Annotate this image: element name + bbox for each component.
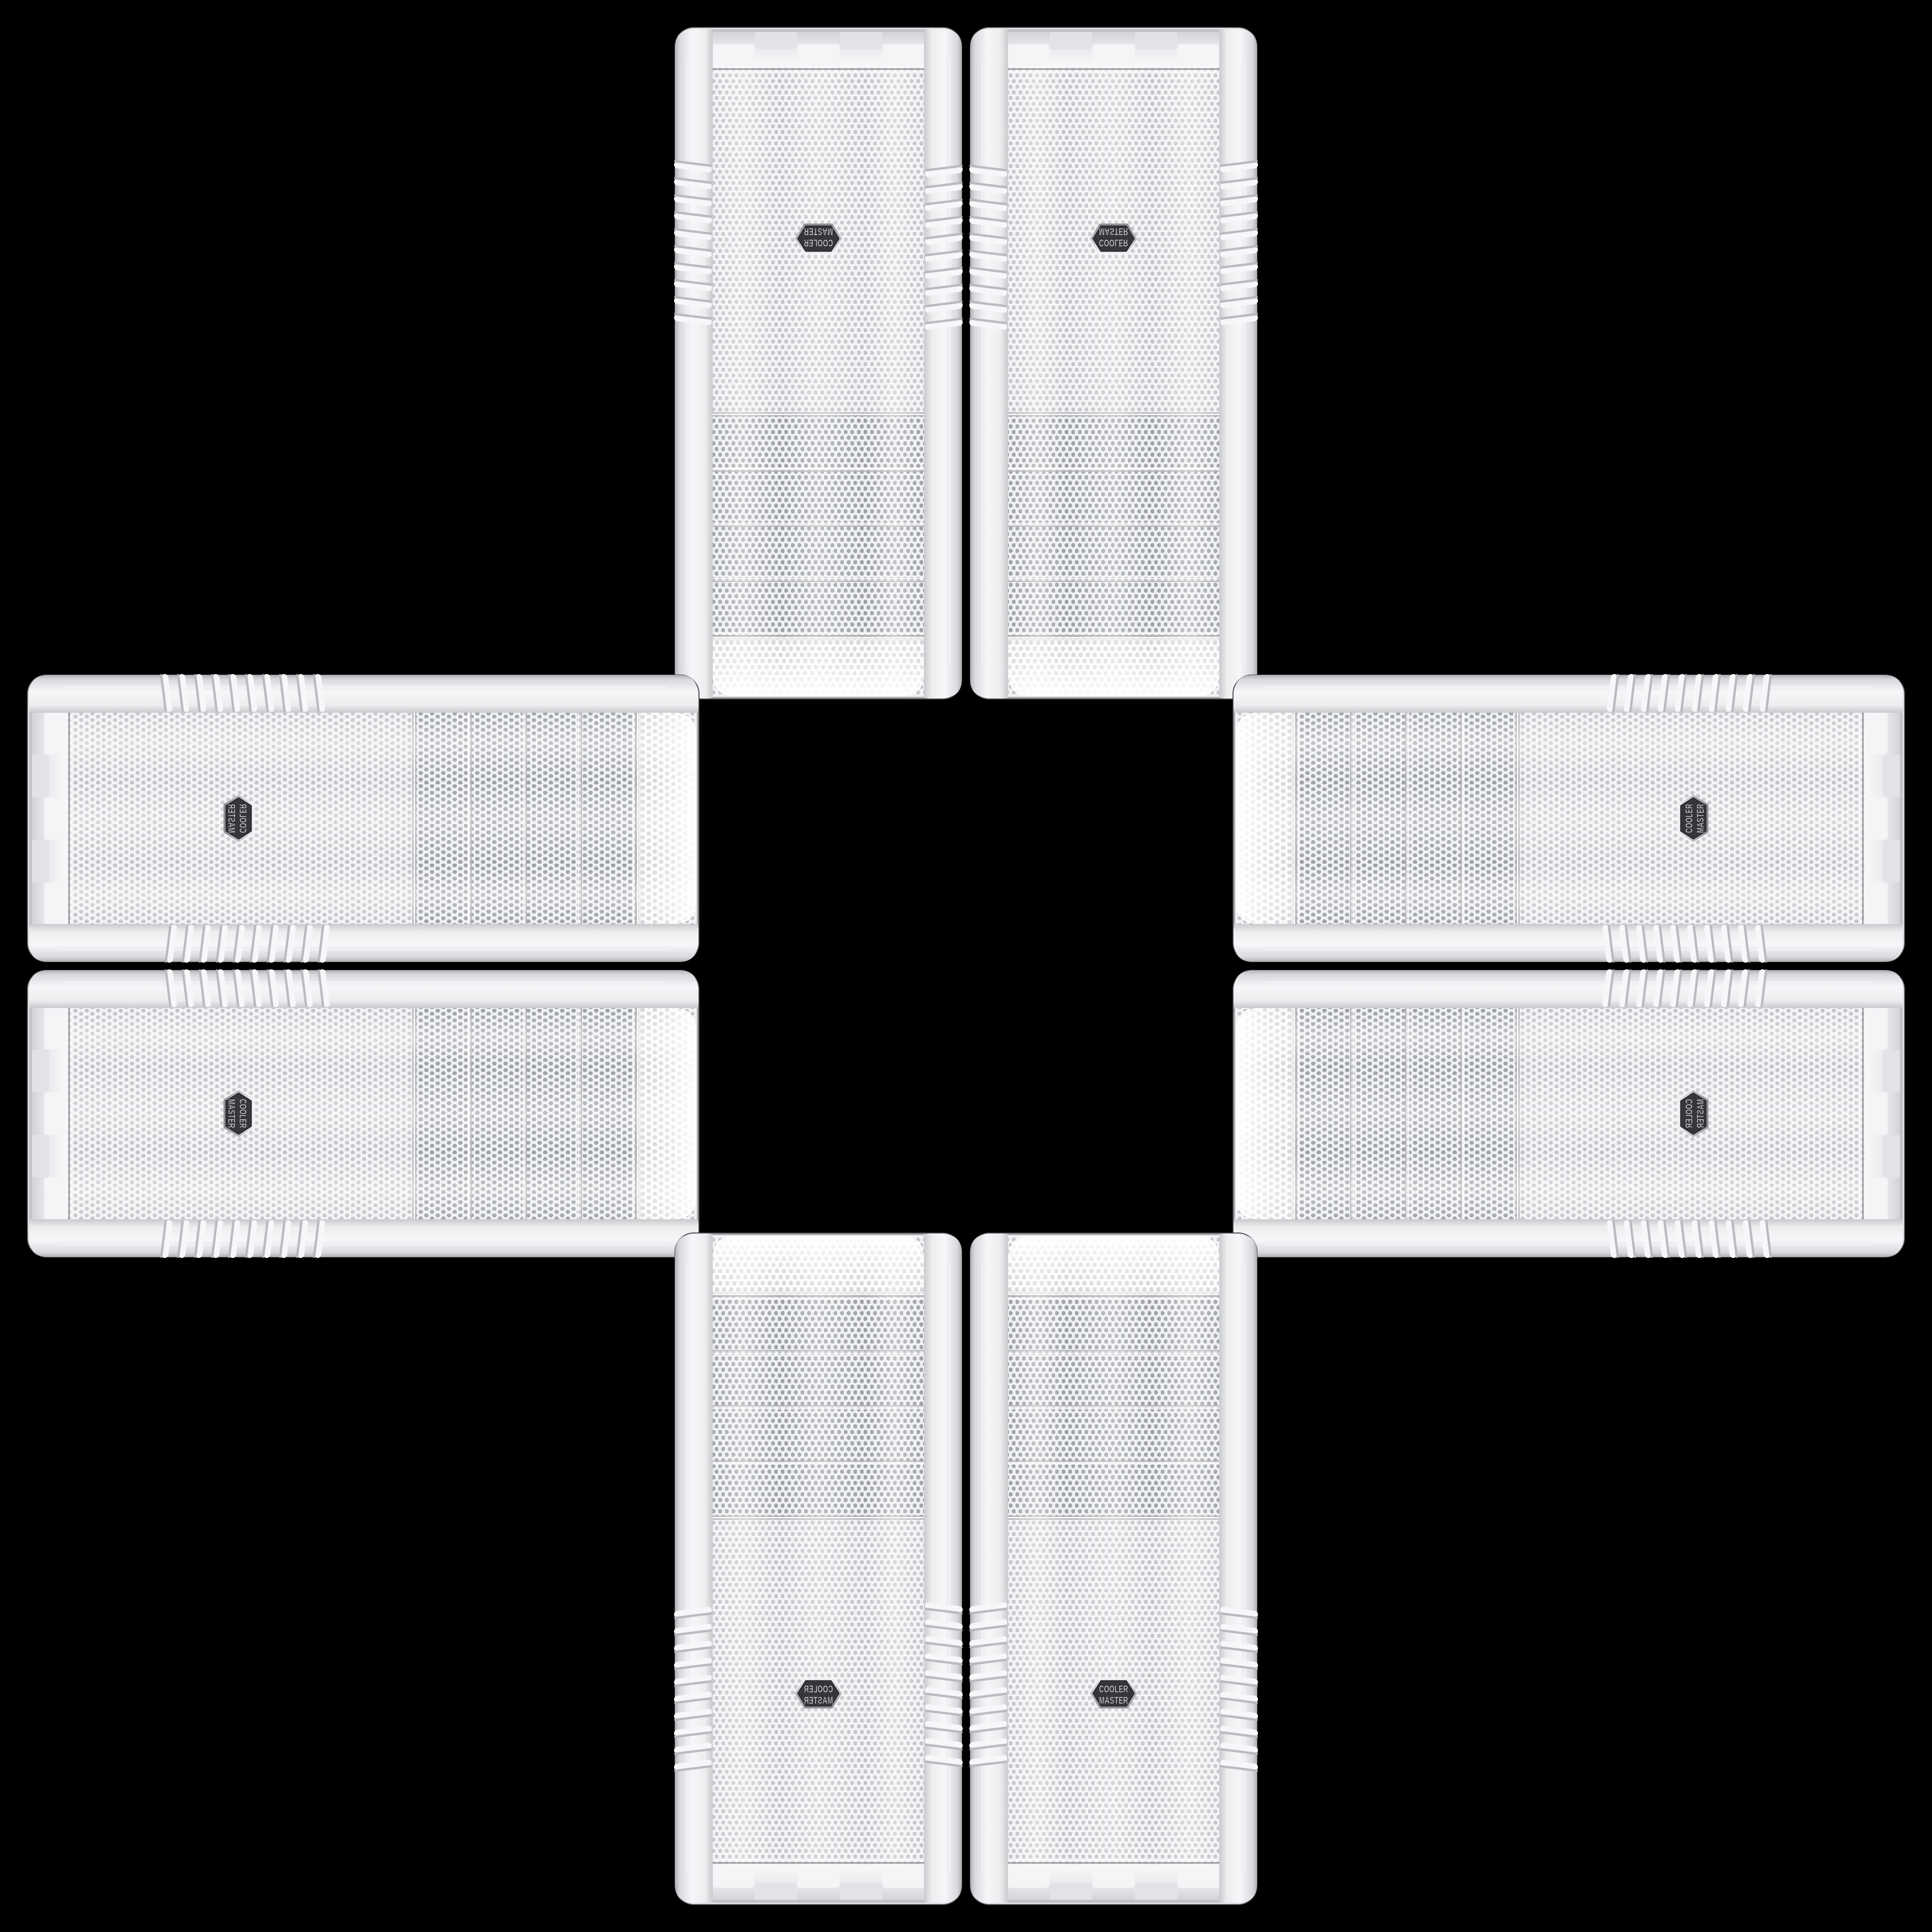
collage-stage: COOLER MASTER — [0, 0, 1932, 1932]
case-left-top — [27, 674, 699, 963]
case-top-left — [674, 27, 963, 699]
case-right-bottom — [1233, 969, 1905, 1258]
collage-canvas: COOLER MASTER — [0, 0, 1932, 1932]
case-top-right — [969, 27, 1258, 699]
case-bottom-left — [674, 1233, 963, 1905]
case-right-top — [1233, 674, 1905, 963]
case-left-bottom — [27, 969, 699, 1258]
case-bottom-right — [969, 1233, 1258, 1905]
background — [0, 0, 1932, 1932]
